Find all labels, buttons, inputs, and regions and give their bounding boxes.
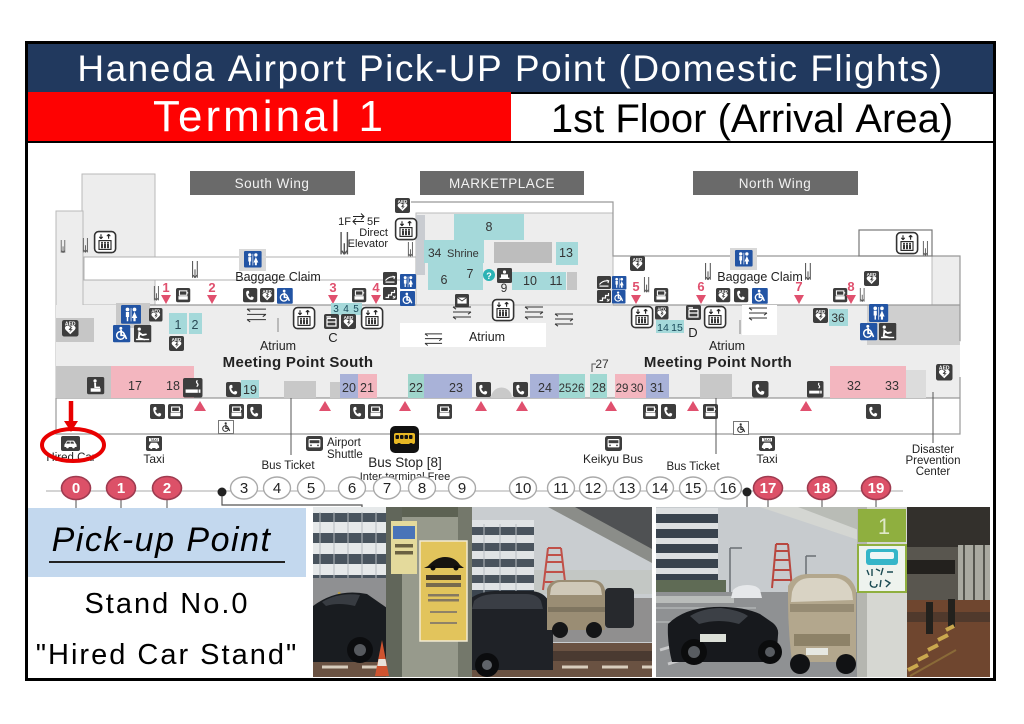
svg-text:33: 33 bbox=[885, 379, 899, 393]
svg-text:32: 32 bbox=[847, 379, 861, 393]
svg-text:6: 6 bbox=[441, 273, 448, 287]
svg-text:Atrium: Atrium bbox=[469, 330, 505, 344]
svg-text:15: 15 bbox=[685, 480, 702, 497]
svg-text:22: 22 bbox=[409, 381, 423, 395]
svg-text:South Wing: South Wing bbox=[235, 176, 310, 191]
svg-text:?: ? bbox=[486, 271, 492, 281]
svg-text:D: D bbox=[688, 325, 697, 340]
svg-text:Meeting Point North: Meeting Point North bbox=[644, 354, 792, 371]
svg-text:13: 13 bbox=[559, 246, 573, 260]
svg-text:2: 2 bbox=[208, 280, 215, 295]
svg-text:8: 8 bbox=[486, 220, 493, 234]
svg-text:5: 5 bbox=[353, 304, 359, 315]
svg-text:1: 1 bbox=[162, 280, 169, 295]
svg-text:Baggage Claim: Baggage Claim bbox=[717, 270, 802, 284]
svg-text:9: 9 bbox=[501, 281, 508, 295]
svg-text:14: 14 bbox=[657, 322, 669, 334]
svg-text:17: 17 bbox=[760, 480, 777, 497]
svg-text:Bus Stop [8]: Bus Stop [8] bbox=[368, 455, 442, 470]
svg-text:10: 10 bbox=[523, 274, 537, 288]
svg-text:8: 8 bbox=[418, 480, 426, 497]
svg-text:8: 8 bbox=[847, 279, 854, 294]
svg-text:11: 11 bbox=[553, 480, 569, 497]
svg-text:12: 12 bbox=[585, 480, 602, 497]
svg-text:Center: Center bbox=[916, 466, 951, 478]
svg-text:6: 6 bbox=[697, 279, 704, 294]
svg-text:Elevator: Elevator bbox=[348, 238, 389, 250]
svg-text:24: 24 bbox=[538, 381, 552, 395]
svg-text:7: 7 bbox=[467, 267, 474, 281]
svg-text:19: 19 bbox=[868, 480, 885, 497]
svg-text:Baggage Claim: Baggage Claim bbox=[235, 270, 320, 284]
svg-text:17: 17 bbox=[128, 379, 142, 393]
svg-text:1: 1 bbox=[117, 480, 125, 497]
svg-text:10: 10 bbox=[515, 480, 532, 497]
svg-text:North Wing: North Wing bbox=[739, 176, 812, 191]
svg-text:Bus Ticket: Bus Ticket bbox=[261, 460, 315, 472]
svg-text:16: 16 bbox=[720, 480, 737, 497]
svg-text:4: 4 bbox=[372, 280, 380, 295]
svg-text:1F: 1F bbox=[338, 216, 351, 228]
svg-text:1: 1 bbox=[878, 514, 890, 539]
svg-text:Keikyu Bus: Keikyu Bus bbox=[583, 452, 643, 466]
svg-text:20: 20 bbox=[342, 381, 356, 395]
svg-text:11: 11 bbox=[550, 274, 563, 288]
svg-text:13: 13 bbox=[619, 480, 636, 497]
svg-text:31: 31 bbox=[650, 381, 664, 395]
svg-text:7: 7 bbox=[383, 480, 391, 497]
svg-text:34: 34 bbox=[428, 246, 442, 260]
svg-text:3: 3 bbox=[240, 480, 248, 497]
svg-text:5: 5 bbox=[632, 279, 639, 294]
svg-text:9: 9 bbox=[458, 480, 466, 497]
svg-text:0: 0 bbox=[72, 480, 80, 497]
svg-text:36: 36 bbox=[831, 311, 845, 325]
svg-text:Shrine: Shrine bbox=[447, 248, 479, 260]
svg-text:15: 15 bbox=[671, 322, 683, 334]
svg-text:29: 29 bbox=[616, 383, 629, 395]
svg-text:Taxi: Taxi bbox=[143, 452, 164, 466]
svg-text:19: 19 bbox=[243, 383, 257, 397]
svg-text:Atrium: Atrium bbox=[709, 339, 745, 353]
svg-text:C: C bbox=[328, 330, 337, 345]
svg-text:28: 28 bbox=[592, 381, 606, 395]
svg-text:4: 4 bbox=[343, 304, 349, 315]
svg-text:21: 21 bbox=[360, 381, 374, 395]
svg-text:27: 27 bbox=[595, 357, 609, 371]
svg-text:30: 30 bbox=[631, 383, 644, 395]
svg-text:4: 4 bbox=[273, 480, 281, 497]
svg-text:Bus Ticket: Bus Ticket bbox=[666, 461, 720, 473]
svg-text:18: 18 bbox=[814, 480, 831, 497]
svg-text:Airport: Airport bbox=[327, 437, 362, 449]
svg-text:3: 3 bbox=[329, 280, 336, 295]
svg-text:25: 25 bbox=[559, 383, 572, 395]
svg-text:7: 7 bbox=[795, 279, 802, 294]
svg-text:26: 26 bbox=[572, 383, 585, 395]
svg-text:23: 23 bbox=[449, 381, 463, 395]
svg-text:MARKETPLACE: MARKETPLACE bbox=[449, 176, 555, 191]
svg-text:14: 14 bbox=[652, 480, 669, 497]
svg-text:5: 5 bbox=[307, 480, 315, 497]
svg-text:Shuttle: Shuttle bbox=[327, 449, 363, 461]
svg-text:2: 2 bbox=[163, 480, 171, 497]
svg-text:18: 18 bbox=[166, 379, 180, 393]
svg-text:2: 2 bbox=[192, 318, 199, 332]
svg-text:Atrium: Atrium bbox=[260, 339, 296, 353]
svg-text:6: 6 bbox=[348, 480, 356, 497]
svg-text:3: 3 bbox=[333, 304, 339, 315]
svg-text:1: 1 bbox=[175, 318, 182, 332]
svg-text:Taxi: Taxi bbox=[756, 452, 777, 466]
svg-text:Inter-terminal Free: Inter-terminal Free bbox=[360, 471, 450, 483]
svg-text:Meeting Point South: Meeting Point South bbox=[223, 354, 374, 371]
